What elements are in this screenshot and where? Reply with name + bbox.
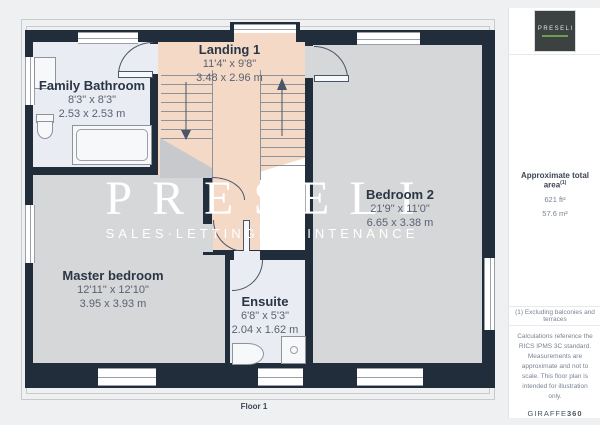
- master-door-opening: [203, 224, 213, 252]
- total-area-section: Approximate total area(1) 621 ft² 57.6 m…: [509, 54, 600, 306]
- floorplan-page: Landing 1 11'4" x 9'8" 3.48 x 2.96 m Fam…: [0, 0, 600, 425]
- master-left-window: [25, 205, 35, 263]
- room-dim-metric: 6.65 x 3.38 m: [330, 217, 470, 231]
- ensuite-bottom-window: [258, 368, 303, 386]
- ensuite-sink: [232, 343, 264, 365]
- room-dim-imperial: 8'3" x 8'3": [27, 94, 157, 108]
- room-dim-imperial: 21'9" x 11'0": [330, 203, 470, 217]
- ensuite-door-opening: [234, 251, 260, 260]
- room-name: Landing 1: [157, 42, 302, 58]
- agency-logo: PRESELI: [535, 11, 575, 51]
- room-dim-metric: 3.48 x 2.96 m: [157, 72, 302, 86]
- room-dim-imperial: 12'11" x 12'10": [43, 284, 183, 298]
- logo-accent-line: [542, 35, 568, 37]
- top-window-bedroom2: [357, 32, 420, 45]
- total-area-label: Approximate total area(1): [509, 171, 600, 190]
- area-footnote: (1) Excluding balconies and terraces: [509, 306, 600, 324]
- giraffe360-brand: GIRAFFE360: [515, 409, 595, 418]
- brand-light: GIRAFFE: [527, 409, 567, 418]
- label-family-bathroom: Family Bathroom 8'3" x 8'3" 2.53 x 2.53 …: [27, 78, 157, 122]
- total-area-superscript: (1): [560, 180, 566, 186]
- room-dim-metric: 2.04 x 1.62 m: [224, 324, 306, 338]
- bedroom2-right-window: [484, 258, 495, 330]
- info-sidebar: PRESELI Approximate total area(1) 621 ft…: [508, 8, 600, 418]
- room-dim-imperial: 6'8" x 5'3": [224, 310, 306, 324]
- total-area-label-text: Approximate total area: [521, 171, 589, 190]
- bathroom-door-leaf: [118, 71, 153, 78]
- label-landing: Landing 1 11'4" x 9'8" 3.48 x 2.96 m: [157, 42, 302, 86]
- room-master-bedroom-ext: [203, 255, 225, 363]
- bedroom2-door-opening: [305, 46, 313, 78]
- bathtub: [72, 125, 152, 165]
- room-dim-metric: 3.95 x 3.93 m: [43, 298, 183, 312]
- top-window-bathroom: [78, 32, 138, 44]
- total-area-imperial: 621 ft²: [509, 195, 600, 204]
- landing-window-recess: [230, 22, 300, 44]
- floor-label: Floor 1: [0, 402, 508, 411]
- agency-logo-text: PRESELI: [536, 26, 573, 32]
- stairs-down-arrow-icon: [180, 82, 192, 144]
- total-area-metric: 57.6 m²: [509, 209, 600, 218]
- stairs-up-arrow-icon: [276, 78, 288, 140]
- logo-section: PRESELI: [509, 8, 600, 54]
- room-name: Family Bathroom: [27, 78, 157, 94]
- room-name: Master bedroom: [43, 268, 183, 284]
- disclaimer-text: Calculations reference the RICS IPMS 3C …: [515, 332, 595, 402]
- stair-stringer-right: [260, 70, 261, 180]
- building-walls: Landing 1 11'4" x 9'8" 3.48 x 2.96 m Fam…: [25, 30, 495, 388]
- bedroom2-bottom-window: [357, 368, 423, 386]
- master-door-leaf: [243, 220, 250, 254]
- bathroom-toilet-bowl: [37, 121, 53, 139]
- disclaimer-section: Calculations reference the RICS IPMS 3C …: [509, 325, 600, 418]
- room-name: Ensuite: [224, 294, 306, 310]
- room-dim-imperial: 11'4" x 9'8": [157, 58, 302, 72]
- room-name: Bedroom 2: [330, 187, 470, 203]
- ensuite-shower: [281, 336, 306, 364]
- room-dim-metric: 2.53 x 2.53 m: [27, 108, 157, 122]
- master-bottom-window: [98, 368, 156, 386]
- bedroom2-door-leaf: [314, 75, 349, 82]
- brand-bold: 360: [567, 409, 583, 418]
- label-ensuite: Ensuite 6'8" x 5'3" 2.04 x 1.62 m: [224, 294, 306, 338]
- label-master-bedroom: Master bedroom 12'11" x 12'10" 3.95 x 3.…: [43, 268, 183, 312]
- hall-floor: [260, 158, 305, 250]
- label-bedroom-2: Bedroom 2 21'9" x 11'0" 6.65 x 3.38 m: [330, 187, 470, 231]
